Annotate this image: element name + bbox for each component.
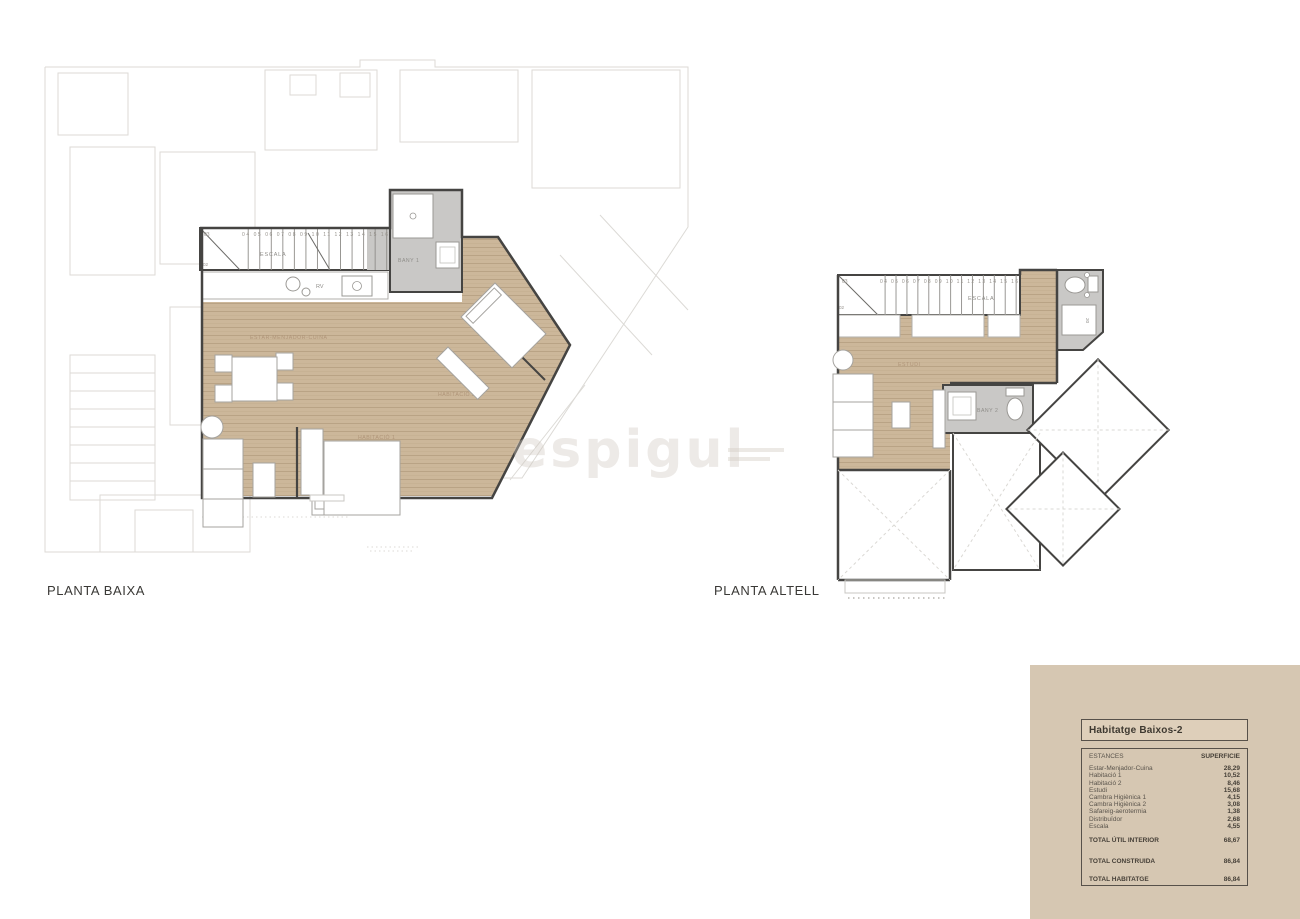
- shelf: [933, 390, 945, 448]
- summary-title: Habitatge Baixos-2: [1081, 719, 1248, 741]
- entry-threshold: [310, 495, 344, 501]
- stair-label: ESCALA: [260, 252, 287, 258]
- table-row: Estudi 15,68: [1089, 787, 1240, 794]
- table-header: ESTANCES SUPERFICIE: [1089, 753, 1240, 760]
- stair-number-02: 02: [839, 305, 845, 310]
- table-total-util: TOTAL ÚTIL INTERIOR 68,67: [1089, 837, 1240, 844]
- table-row: Safareig-aerotermia 1,38: [1089, 808, 1240, 815]
- sink-icon: [342, 276, 372, 296]
- row-value: 3,08: [1227, 801, 1240, 808]
- bottom-hatch: [845, 580, 945, 598]
- sofa: [833, 374, 873, 457]
- washbasin-icon: [436, 242, 459, 268]
- table-row: Escala 4,55: [1089, 823, 1240, 830]
- watermark-tagline-bar: [728, 457, 770, 461]
- total-value: 86,84: [1224, 858, 1240, 865]
- row-value: 8,46: [1227, 780, 1240, 787]
- row-name: Distribuïdor: [1089, 816, 1122, 823]
- total-name: TOTAL ÚTIL INTERIOR: [1089, 837, 1159, 844]
- shower-icon: [393, 194, 433, 238]
- washbasin-icon: [948, 392, 976, 420]
- kitchen-rv-label: RV: [316, 284, 324, 290]
- stair-number-03: 03: [204, 232, 210, 238]
- table-total-habitatge: TOTAL HABITATGE 86,84: [1089, 876, 1240, 883]
- floor-plan-baixa: ESTAR-MENJADOR-CUINA HABITACIÓ 1 HABITAC…: [40, 55, 700, 570]
- row-name: Habitació 1: [1089, 772, 1122, 779]
- wardrobe-hab1: [301, 429, 323, 495]
- table-row: Distribuïdor 2,68: [1089, 816, 1240, 823]
- row-value: 4,15: [1227, 794, 1240, 801]
- living-room-label: ESTAR-MENJADOR-CUINA: [250, 335, 328, 341]
- row-name: Cambra Higiènica 1: [1089, 794, 1146, 801]
- coffee-table: [892, 402, 910, 428]
- row-value: 1,38: [1227, 808, 1240, 815]
- table-row: Habitació 1 10,52: [1089, 772, 1240, 779]
- bathroom1: BANY 1: [390, 190, 462, 292]
- col-superficie: SUPERFICIE: [1201, 753, 1240, 760]
- row-name: Safareig-aerotermia: [1089, 808, 1146, 815]
- watermark-logo: espigul: [512, 420, 832, 482]
- total-name: TOTAL HABITATGE: [1089, 876, 1149, 883]
- row-value: 28,29: [1224, 765, 1240, 772]
- total-value: 68,67: [1224, 837, 1240, 844]
- summary-table: ESTANCES SUPERFICIE Estar-Menjador-Cuina…: [1081, 748, 1248, 886]
- round-table: [833, 350, 853, 370]
- summary-panel: Habitatge Baixos-2 ESTANCES SUPERFICIE E…: [1030, 665, 1300, 919]
- col-estances: ESTANCES: [1089, 753, 1124, 760]
- total-value: 86,84: [1224, 876, 1240, 883]
- bathroom2: BANY 2: [943, 385, 1033, 433]
- total-name: TOTAL CONSTRUIDA: [1089, 858, 1155, 865]
- table-row: Habitació 2 8,46: [1089, 780, 1240, 787]
- row-value: 4,55: [1227, 823, 1240, 830]
- watermark-tagline-bar: [728, 448, 784, 452]
- plan-title-altell: PLANTA ALTELL: [714, 583, 820, 598]
- row-name: Escala: [1089, 823, 1109, 830]
- box20-label: 20: [1085, 318, 1090, 324]
- coffee-table: [253, 463, 275, 497]
- bathroom-top: 20: [1057, 270, 1103, 350]
- row-name: Habitació 2: [1089, 780, 1122, 787]
- row-value: 15,68: [1224, 787, 1240, 794]
- cabinets: [838, 315, 1020, 337]
- bed-hab1: [312, 441, 400, 515]
- row-name: Estar-Menjador-Cuina: [1089, 765, 1153, 772]
- table-row: Cambra Higiènica 1 4,15: [1089, 794, 1240, 801]
- sofa: [203, 439, 243, 527]
- row-name: Cambra Higiènica 2: [1089, 801, 1146, 808]
- bathroom2-label: BANY 2: [977, 408, 998, 414]
- floor-plan-altell: ESTUDI 03 04 05 06 07 08 09 10 11 12 13 …: [830, 262, 1200, 607]
- side-table-round: [201, 416, 223, 438]
- row-value: 2,68: [1227, 816, 1240, 823]
- stair-number-03: 03: [842, 279, 848, 285]
- kitchen-counter: RV: [202, 272, 388, 299]
- bedroom1-label: HABITACIÓ 1: [358, 434, 395, 441]
- row-value: 10,52: [1224, 772, 1240, 779]
- row-name: Estudi: [1089, 787, 1107, 794]
- table-row: Estar-Menjador-Cuina 28,29: [1089, 765, 1240, 772]
- stair-number-02: 02: [203, 262, 209, 267]
- bathroom1-label: BANY 1: [398, 258, 419, 264]
- stair-label: ESCALA: [968, 296, 995, 302]
- table-total-construida: TOTAL CONSTRUIDA 86,84: [1089, 858, 1240, 865]
- plan-title-baixa: PLANTA BAIXA: [47, 583, 145, 598]
- toilet-icon: [1006, 388, 1024, 420]
- table-row: Cambra Higiènica 2 3,08: [1089, 801, 1240, 808]
- stair-altell: 03 04 05 06 07 08 09 10 11 12 13 14 15 1…: [838, 275, 1020, 315]
- estudi-label: ESTUDI: [898, 362, 921, 368]
